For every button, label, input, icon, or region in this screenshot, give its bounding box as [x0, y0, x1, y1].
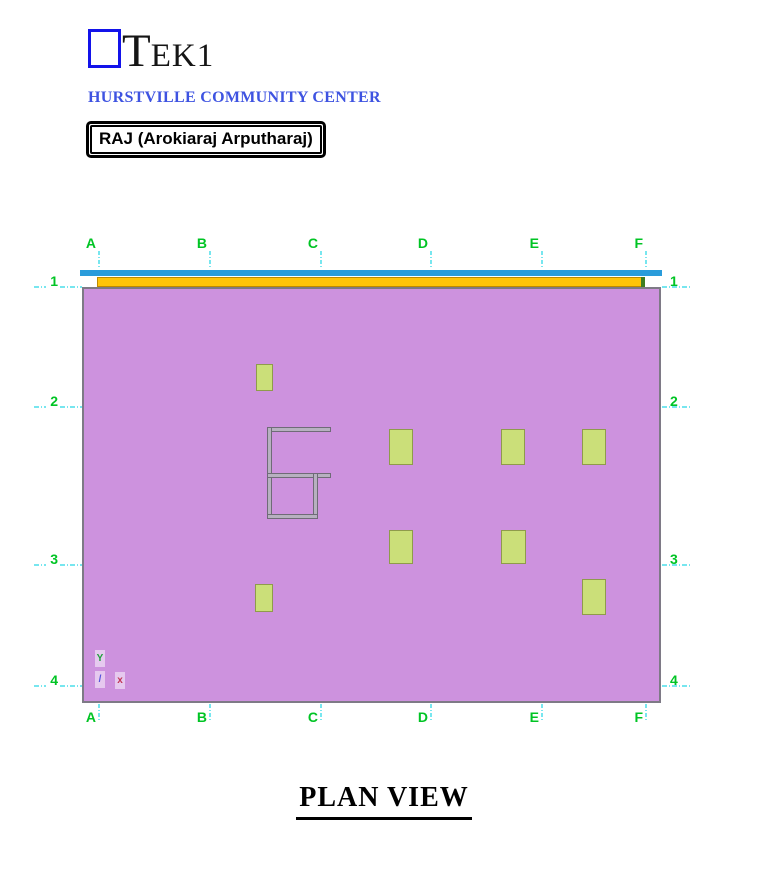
grid-column-label-bottom: C	[298, 710, 318, 724]
grid-column-label-top: F	[623, 236, 643, 250]
column-marker	[501, 530, 526, 564]
stair-wall-segment	[267, 427, 331, 432]
column-marker	[582, 429, 606, 465]
grid-column-tick-bottom	[645, 704, 647, 721]
ucs-y-axis-icon: Y	[95, 650, 105, 667]
grid-row-tick-right	[662, 406, 692, 408]
top-edge-beam-blue	[80, 270, 662, 276]
stair-wall-segment	[267, 473, 331, 478]
column-marker	[255, 584, 273, 612]
grid-column-tick-top	[430, 251, 432, 267]
stair-wall-segment	[313, 473, 318, 519]
drawing-title: PLAN VIEW	[296, 782, 472, 820]
ucs-x-axis-icon: x	[115, 672, 125, 689]
grid-row-tick-left	[60, 406, 82, 408]
grid-row-tick-left	[60, 564, 82, 566]
column-marker	[389, 429, 413, 465]
grid-column-tick-bottom	[98, 704, 100, 721]
top-edge-beam-orange	[97, 277, 644, 287]
grid-column-label-bottom: A	[76, 710, 96, 724]
grid-row-tick-left	[34, 685, 46, 687]
grid-column-tick-top	[541, 251, 543, 267]
grid-column-tick-top	[209, 251, 211, 267]
grid-row-tick-left	[60, 685, 82, 687]
grid-column-tick-top	[98, 251, 100, 267]
grid-column-label-top: B	[187, 236, 207, 250]
grid-row-tick-right	[662, 564, 692, 566]
floor-slab	[82, 287, 661, 703]
column-marker	[501, 429, 525, 465]
grid-column-label-bottom: F	[623, 710, 643, 724]
grid-column-label-bottom: E	[519, 710, 539, 724]
column-marker	[389, 530, 413, 564]
plan-canvas: AABBCCDDEEFF11223344Y/x	[0, 0, 768, 880]
grid-column-tick-bottom	[430, 704, 432, 721]
beam-end-marker	[641, 277, 645, 287]
column-marker	[256, 364, 273, 391]
grid-column-label-bottom: B	[187, 710, 207, 724]
grid-column-tick-bottom	[541, 704, 543, 721]
column-marker	[582, 579, 606, 615]
ucs-origin-icon: /	[95, 671, 105, 688]
grid-row-tick-left	[34, 564, 46, 566]
grid-column-tick-bottom	[320, 704, 322, 721]
grid-row-tick-left	[60, 286, 82, 288]
stair-wall-segment	[267, 514, 318, 519]
drawing-title-row: PLAN VIEW	[0, 782, 768, 820]
grid-row-tick-left	[34, 406, 46, 408]
grid-row-tick-left	[34, 286, 46, 288]
grid-column-label-bottom: D	[408, 710, 428, 724]
grid-column-label-top: C	[298, 236, 318, 250]
grid-column-label-top: D	[408, 236, 428, 250]
grid-column-label-top: A	[76, 236, 96, 250]
grid-column-label-top: E	[519, 236, 539, 250]
grid-row-tick-right	[662, 286, 692, 288]
grid-row-tick-right	[662, 685, 692, 687]
grid-column-tick-bottom	[209, 704, 211, 721]
grid-column-tick-top	[320, 251, 322, 267]
grid-column-tick-top	[645, 251, 647, 267]
